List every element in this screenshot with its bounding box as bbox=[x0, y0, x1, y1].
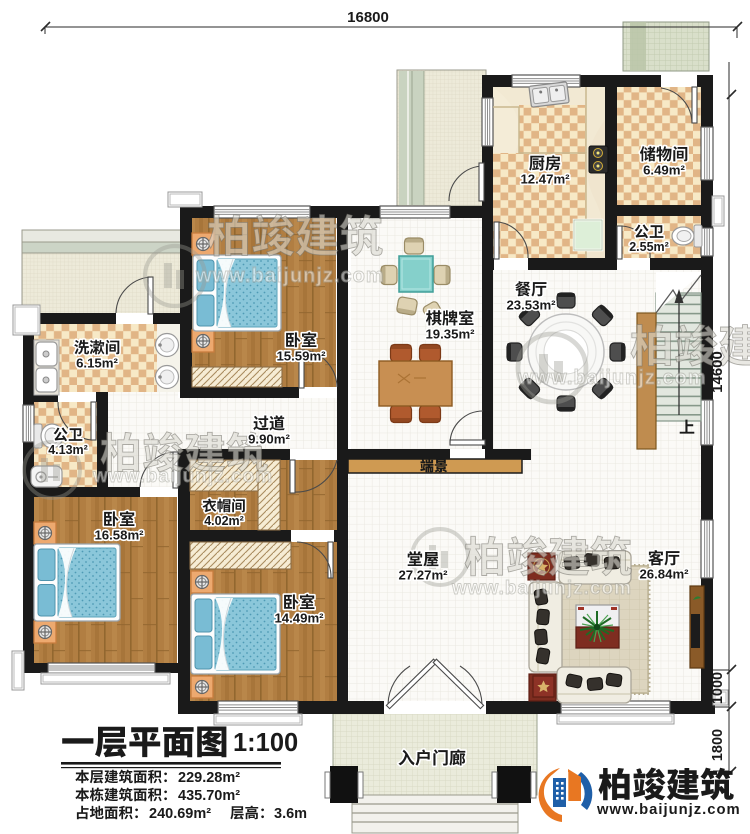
svg-text:15.59m²: 15.59m² bbox=[276, 349, 326, 364]
svg-text:6.49m²: 6.49m² bbox=[643, 163, 685, 178]
svg-text:6.15m²: 6.15m² bbox=[76, 356, 118, 371]
svg-text:14.49m²: 14.49m² bbox=[274, 611, 324, 626]
svg-text:435.70m²: 435.70m² bbox=[178, 788, 240, 804]
svg-text:www.baijunjz.com: www.baijunjz.com bbox=[596, 802, 741, 818]
svg-text:240.69m²: 240.69m² bbox=[149, 806, 211, 822]
svg-text:14600: 14600 bbox=[709, 351, 726, 393]
svg-text:16.58m²: 16.58m² bbox=[94, 528, 144, 543]
svg-text:1800: 1800 bbox=[710, 729, 726, 761]
svg-text:3.6m: 3.6m bbox=[274, 806, 307, 822]
svg-text:4.02m²: 4.02m² bbox=[204, 514, 244, 528]
svg-text:2.55m²: 2.55m² bbox=[629, 240, 669, 254]
svg-text:16800: 16800 bbox=[347, 9, 389, 26]
svg-text:www.baijunjz.com: www.baijunjz.com bbox=[517, 367, 707, 389]
svg-text:1000: 1000 bbox=[710, 672, 726, 704]
svg-text:26.84m²: 26.84m² bbox=[639, 567, 689, 582]
svg-text:23.53m²: 23.53m² bbox=[506, 298, 556, 313]
svg-text:www.baijunjz.com: www.baijunjz.com bbox=[92, 466, 273, 487]
svg-text:www.baijunjz.com: www.baijunjz.com bbox=[451, 578, 632, 599]
svg-text:4.13m²: 4.13m² bbox=[48, 443, 88, 457]
svg-text:19.35m²: 19.35m² bbox=[425, 327, 475, 342]
svg-text:9.90m²: 9.90m² bbox=[248, 432, 290, 447]
svg-text:27.27m²: 27.27m² bbox=[398, 568, 448, 583]
svg-text:1:100: 1:100 bbox=[233, 729, 298, 757]
svg-text:12.47m²: 12.47m² bbox=[520, 172, 570, 187]
svg-text:229.28m²: 229.28m² bbox=[178, 770, 240, 786]
svg-text:www.baijunjz.com: www.baijunjz.com bbox=[195, 265, 385, 287]
